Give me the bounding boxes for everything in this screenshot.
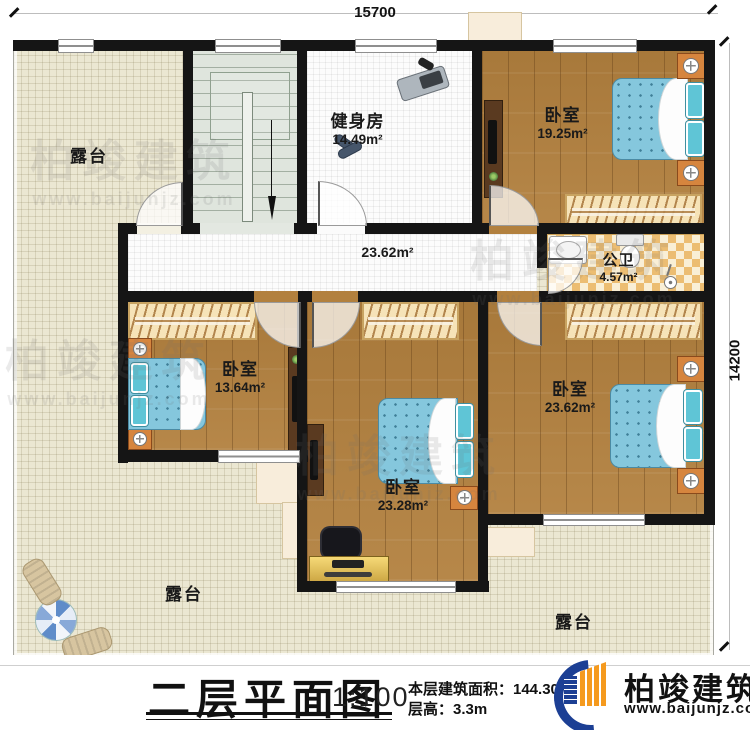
wardrobe [362, 302, 459, 340]
pillow [131, 363, 148, 393]
stair-arrow-line [271, 120, 272, 198]
window [58, 39, 94, 53]
dimension-tick [719, 36, 729, 46]
pillow [131, 396, 148, 426]
dimension-tick [719, 641, 729, 651]
wardrobe [128, 302, 257, 340]
pillow [686, 83, 704, 118]
pillow [684, 427, 702, 461]
nightstand [677, 356, 705, 382]
stair-direction-arrow [268, 196, 276, 220]
window [215, 39, 281, 53]
nightstand [677, 160, 705, 186]
floor-plan-page: 15700 14200 [0, 0, 750, 730]
bed-blanket [656, 384, 686, 468]
plant-icon [489, 172, 498, 181]
nightstand [677, 53, 705, 79]
nightstand [677, 468, 705, 494]
door-opening [497, 291, 539, 302]
wall [118, 223, 128, 463]
corridor-area-label: 23.62m² [330, 244, 445, 261]
stair-rail [242, 92, 253, 222]
wall [118, 291, 715, 302]
room-label-bedroom-left: 卧室 13.64m² [185, 360, 295, 397]
pillow [456, 404, 473, 439]
room-label-bathroom: 公卫 4.57m² [576, 252, 661, 284]
room-label-gym: 健身房 14.49m² [300, 112, 415, 149]
terrace-label-bottom-right: 露台 [555, 608, 593, 633]
shower-icon [664, 276, 677, 289]
nightstand [128, 338, 152, 360]
window [336, 581, 456, 593]
room-label-bedroom-bottom-right: 卧室 23.62m² [515, 380, 625, 417]
bed-blanket [658, 78, 688, 160]
room-label-bedroom-middle: 卧室 23.28m² [348, 478, 458, 515]
wall [183, 40, 193, 234]
wall [537, 223, 547, 268]
top-dimension-label: 15700 [340, 4, 410, 21]
floor-height-text: 层高：3.3m [408, 700, 487, 720]
patio-umbrella-icon [36, 600, 76, 640]
bay-bump-top [468, 12, 522, 43]
terrace-label-bottom-left: 露台 [165, 580, 203, 605]
planter-right [487, 527, 535, 557]
tv-icon [310, 440, 318, 480]
window [543, 514, 645, 526]
plan-scale: 1:100 [332, 682, 410, 713]
right-dimension-label: 14200 [727, 326, 744, 396]
window [553, 39, 637, 53]
nightstand [128, 428, 152, 450]
room-label-bedroom-top-right: 卧室 19.25m² [505, 106, 620, 143]
pillow [684, 390, 702, 424]
wall [472, 40, 482, 234]
terrace-label-top-left: 露台 [70, 142, 108, 167]
window [218, 450, 300, 463]
tv-icon [488, 120, 497, 164]
brand-logo-icon [552, 654, 618, 724]
title-underline [146, 712, 392, 720]
bed-blanket [428, 398, 456, 484]
stair-opening [200, 223, 294, 234]
pillow [456, 442, 473, 477]
corridor-floor [128, 234, 537, 291]
brand-website: www.baijunjz.com [624, 700, 750, 717]
door-opening [254, 291, 298, 302]
pillow [686, 121, 704, 156]
window [355, 39, 437, 53]
wardrobe [565, 302, 702, 340]
wall [704, 40, 715, 525]
office-chair-icon [322, 528, 360, 558]
wall [478, 291, 488, 592]
door-opening [312, 291, 358, 302]
